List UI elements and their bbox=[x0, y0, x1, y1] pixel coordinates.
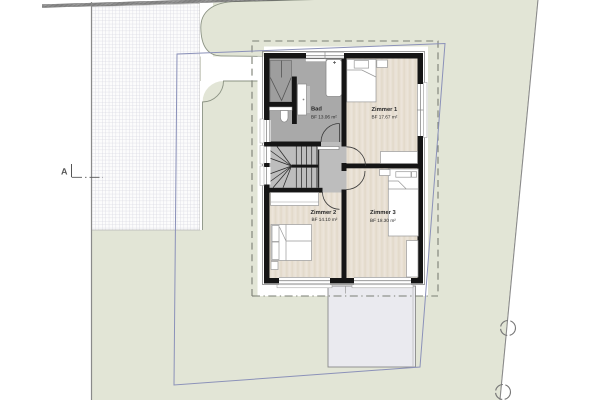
svg-text:BF 18.30 m²: BF 18.30 m² bbox=[370, 218, 396, 223]
svg-text:BF 14.10 m²: BF 14.10 m² bbox=[312, 217, 338, 222]
svg-text:Zimmer 1: Zimmer 1 bbox=[372, 106, 399, 113]
svg-text:Bad: Bad bbox=[311, 106, 322, 113]
svg-text:BF 13.06 m²: BF 13.06 m² bbox=[311, 114, 337, 119]
svg-text:Zimmer 3: Zimmer 3 bbox=[370, 209, 397, 216]
svg-text:Zimmer 2: Zimmer 2 bbox=[311, 209, 337, 216]
svg-text:BF 17.67 m²: BF 17.67 m² bbox=[372, 115, 398, 120]
svg-text:A: A bbox=[61, 167, 68, 177]
